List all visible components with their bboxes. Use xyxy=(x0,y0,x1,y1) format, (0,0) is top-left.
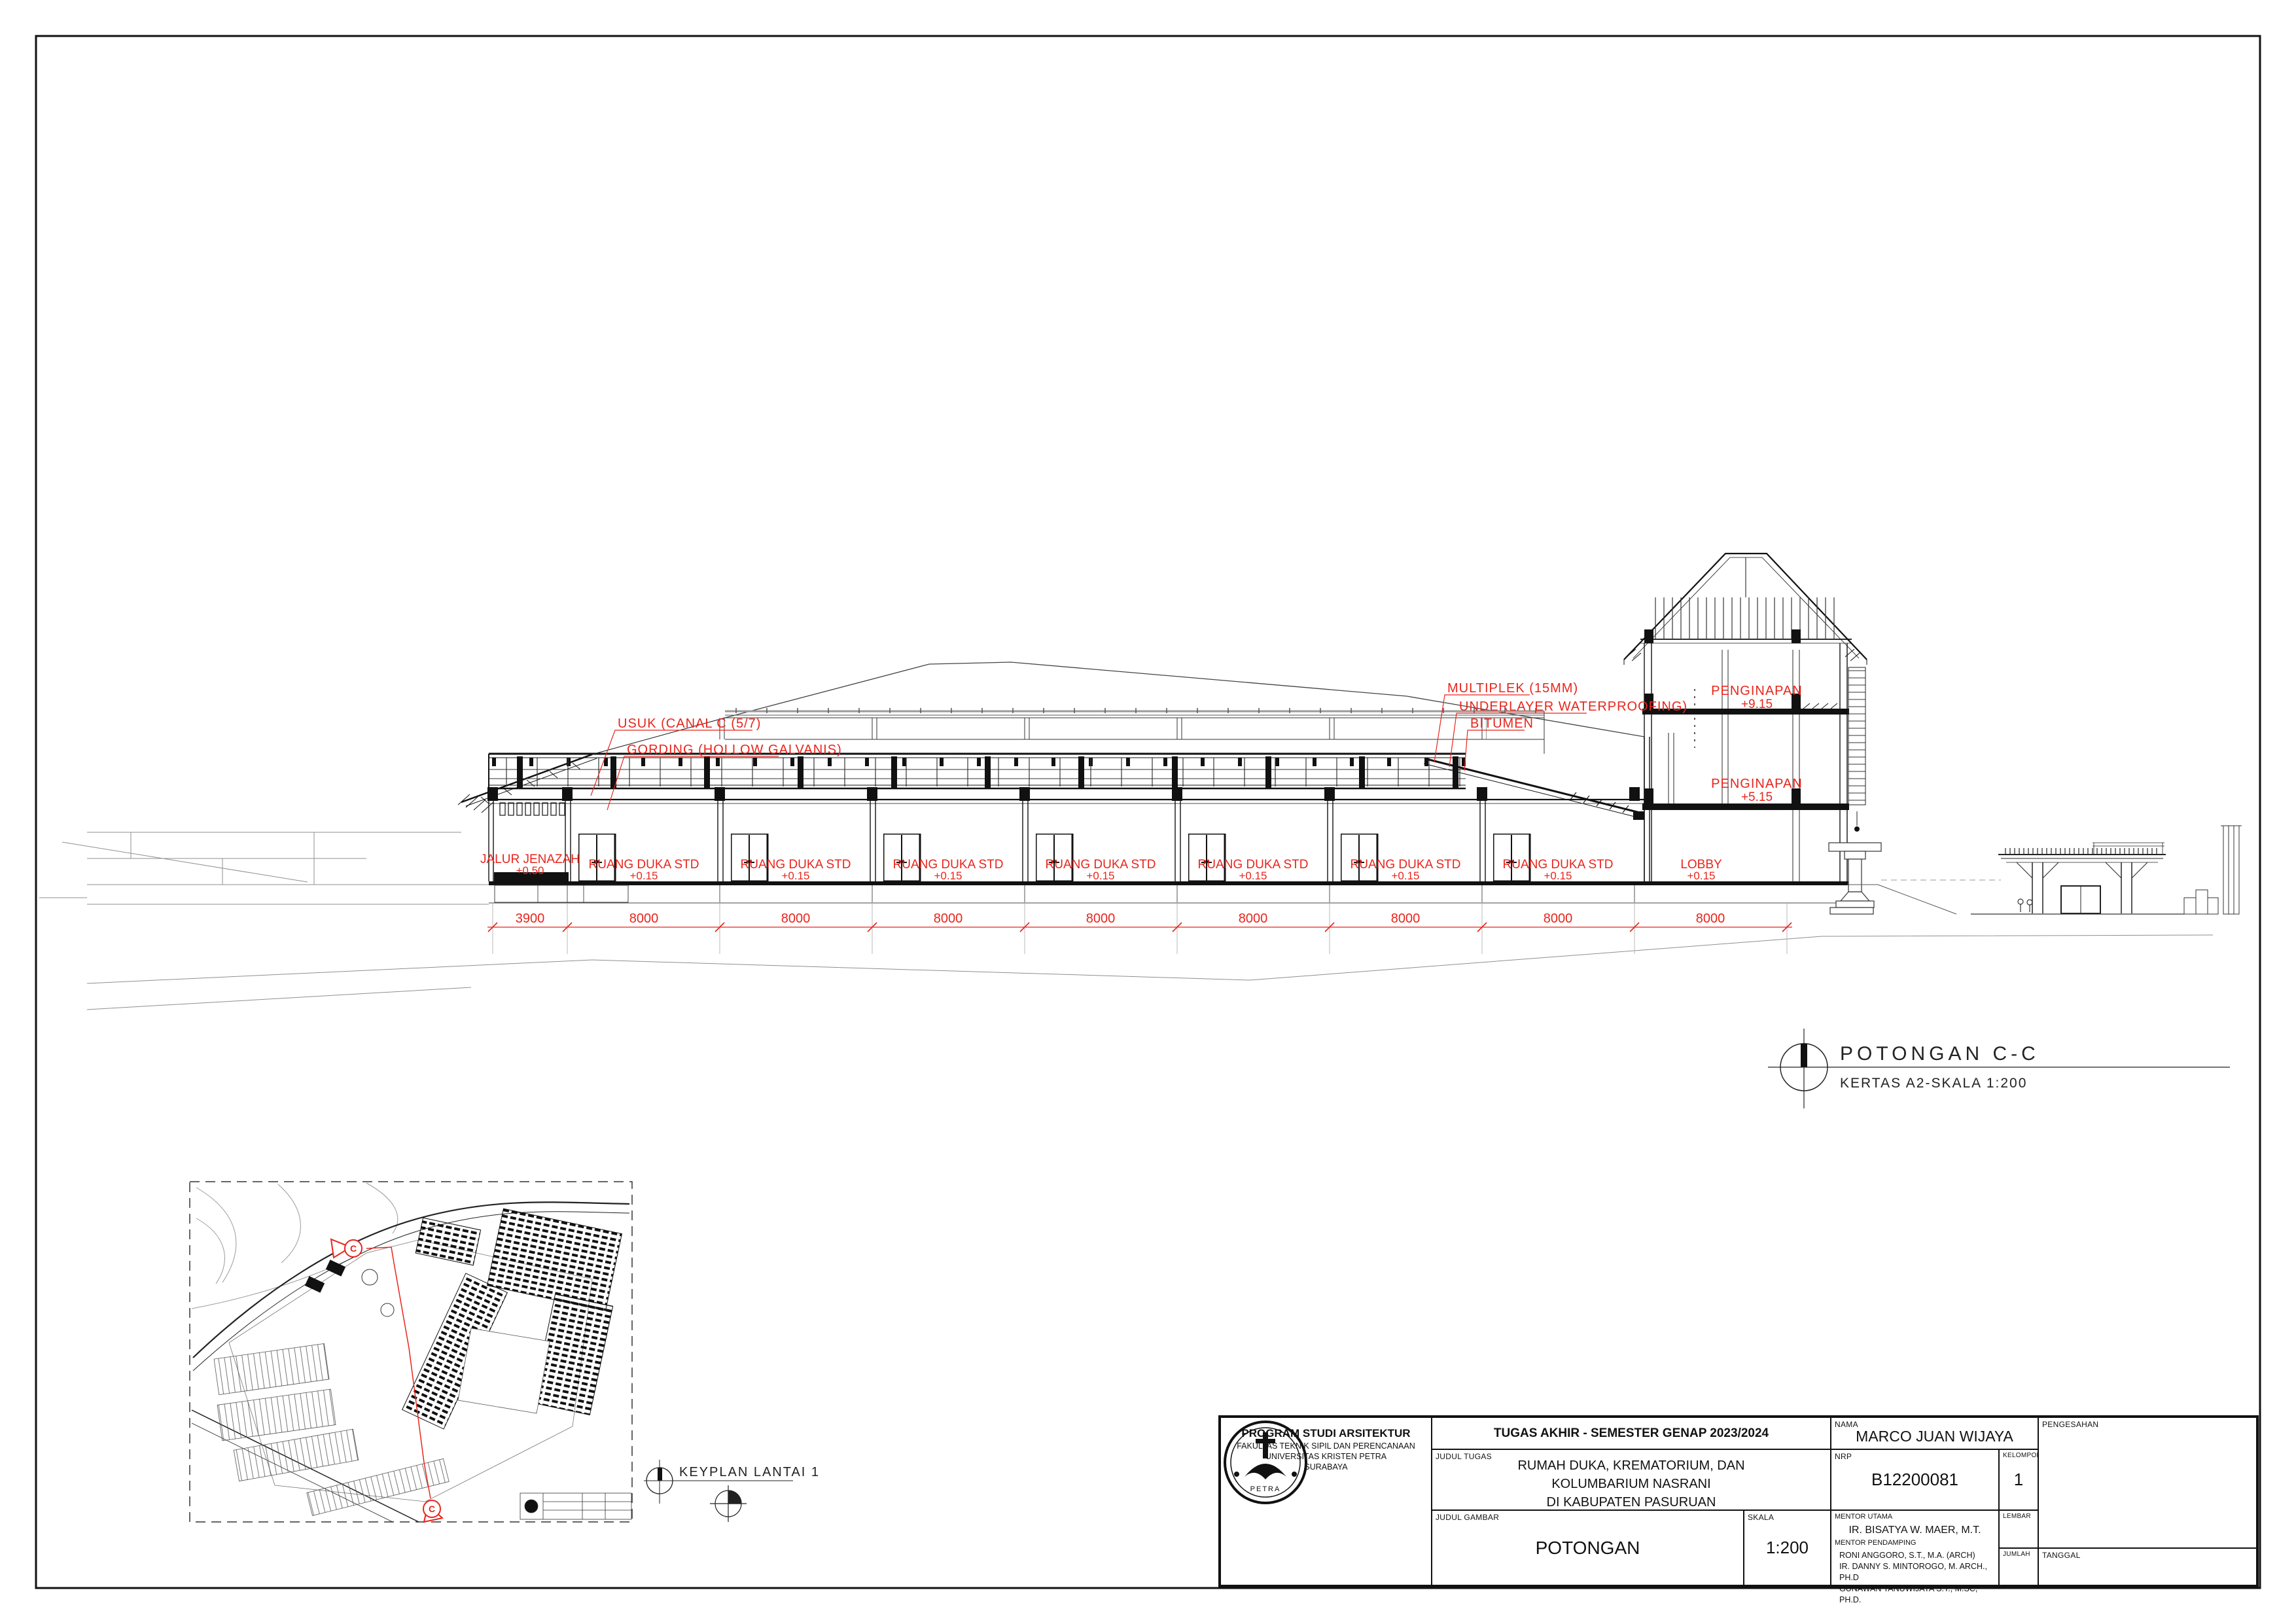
rafter-ticks xyxy=(1651,597,1839,639)
room-level: +0.15 xyxy=(1687,870,1715,882)
mentor-pendamping-label: MENTOR PENDAMPING xyxy=(1831,1539,1998,1547)
drawing-sheet: USUK (CANAL C (5/7) GORDING (HOLLOW GALV… xyxy=(0,0,2296,1624)
dim-label: 8000 xyxy=(1391,911,1421,926)
section-title: POTONGAN C-C KERTAS A2-SKALA 1:200 xyxy=(1768,1029,2230,1108)
keyplan-contours xyxy=(192,1183,398,1309)
tanggal-label: TANGGAL xyxy=(2042,1551,2081,1560)
project-title-line: RUMAH DUKA, KREMATORIUM, DAN xyxy=(1432,1456,1830,1475)
student-id: B12200081 xyxy=(1831,1450,1998,1509)
room-level: +0.15 xyxy=(1086,870,1114,882)
dimension-string: 3900 8000 8000 8000 8000 8000 8000 8000 … xyxy=(487,911,1792,932)
keyplan-parking xyxy=(214,1343,449,1515)
dim-label: 8000 xyxy=(934,911,963,926)
mentor-utama-name: IR. BISATYA W. MAER, M.T. xyxy=(1831,1525,1998,1536)
pengesahan-cell: PENGESAHAN xyxy=(2038,1417,2257,1548)
mentor-pendamping-name: RONI ANGGORO, S.T., M.A. (ARCH) xyxy=(1839,1550,1998,1561)
room-level: +0.15 xyxy=(1544,870,1572,882)
judul-tugas-label: JUDUL TUGAS xyxy=(1436,1452,1492,1461)
annotation-label: UNDERLAYER WATERPROOFING) xyxy=(1459,699,1687,714)
title-block: PETRA PROGRAM STUDI ARSITEKTUR FAKULTAS … xyxy=(1218,1415,2259,1587)
annotation-label: MULTIPLEK (15MM) xyxy=(1447,681,1578,696)
logo-text: PETRA xyxy=(1250,1485,1281,1493)
judul-tugas-cell: JUDUL TUGAS RUMAH DUKA, KREMATORIUM, DAN… xyxy=(1432,1449,1831,1510)
annotation-label: USUK (CANAL C (5/7) xyxy=(618,716,761,731)
mentor-pendamping-name: GUNAWAN TANUWIJAYA S.T., M.SC, PH.D. xyxy=(1839,1583,1998,1606)
project-title-line: KOLUMBARIUM NASRANI xyxy=(1432,1475,1830,1493)
drawing-title: POTONGAN xyxy=(1432,1511,1743,1585)
university-logo: PETRA xyxy=(1221,1418,1310,1507)
lembar-cell: LEMBAR xyxy=(1999,1510,2038,1548)
tanggal-cell: TANGGAL xyxy=(2038,1548,2257,1585)
project-title-line: DI KABUPATEN PASURUAN xyxy=(1432,1493,1830,1511)
section-drawing-canvas: USUK (CANAL C (5/7) GORDING (HOLLOW GALV… xyxy=(0,0,2296,1624)
institution-cell: PETRA PROGRAM STUDI ARSITEKTUR FAKULTAS … xyxy=(1220,1417,1432,1585)
room-level: +0.50 xyxy=(516,864,544,877)
room-level: +0.15 xyxy=(934,870,962,882)
people-figures xyxy=(2018,899,2032,912)
kelompok-cell: KELOMPOK 1 xyxy=(1999,1449,2038,1510)
room-label: PENGINAPAN xyxy=(1711,684,1803,698)
tower-ladder xyxy=(1848,667,1865,805)
section-title-text: POTONGAN C-C xyxy=(1840,1043,2040,1065)
section-subtitle-text: KERTAS A2-SKALA 1:200 xyxy=(1840,1076,2027,1091)
student-name: MARCO JUAN WIJAYA xyxy=(1831,1418,2038,1449)
nama-cell: NAMA MARCO JUAN WIJAYA xyxy=(1831,1417,2038,1449)
header-cell: TUGAS AKHIR - SEMESTER GENAP 2023/2024 xyxy=(1432,1417,1831,1449)
foundation-lines xyxy=(489,885,1847,903)
dim-label: 8000 xyxy=(1086,911,1116,926)
north-symbol xyxy=(710,1485,747,1522)
section-marker-letter: C xyxy=(350,1243,357,1254)
room-level: +0.15 xyxy=(1391,870,1419,882)
mentor-utama-label: MENTOR UTAMA xyxy=(1831,1511,1998,1521)
group-number: 1 xyxy=(2000,1450,2038,1509)
dim-label: 3900 xyxy=(516,911,545,926)
tower-slab-515 xyxy=(1642,803,1849,810)
pengesahan-label: PENGESAHAN xyxy=(2042,1420,2098,1429)
jumlah-cell: JUMLAH xyxy=(1999,1548,2038,1585)
dim-label: 8000 xyxy=(1696,911,1725,926)
room-level: +9.15 xyxy=(1741,697,1773,711)
site-context-right xyxy=(1829,826,2242,914)
extension-lines xyxy=(493,903,1787,954)
page-border xyxy=(36,36,2260,1588)
site-steps xyxy=(2184,826,2242,914)
tower-room-labels: PENGINAPAN +9.15 PENGINAPAN +5.15 xyxy=(1711,684,1803,804)
annotation-label: BITUMEN xyxy=(1470,716,1534,731)
keyplan-mini-titleblock xyxy=(520,1493,631,1519)
tower-section xyxy=(1624,554,1867,881)
room-level: +5.15 xyxy=(1741,790,1773,804)
roof-truss-band xyxy=(489,754,1466,788)
annotation-label: GORDING (HOLLOW GALVANIS) xyxy=(627,743,842,757)
keyplan: C C KEYPLAN LANTAI 1 xyxy=(190,1182,820,1522)
dim-label: 8000 xyxy=(1544,911,1573,926)
jumlah-label: JUMLAH xyxy=(2003,1551,2030,1558)
tower-walls xyxy=(1644,643,1847,881)
room-label: PENGINAPAN xyxy=(1711,777,1803,791)
pedestal xyxy=(1829,843,1881,914)
room-labels: JALUR JENAZAH +0.50 RUANG DUKA STD +0.15… xyxy=(480,853,1722,882)
dim-label: 8000 xyxy=(781,911,811,926)
floor-slab xyxy=(489,881,1849,885)
judul-gambar-cell: JUDUL GAMBAR POTONGAN xyxy=(1432,1510,1744,1585)
room-level: +0.15 xyxy=(629,870,658,882)
pavilion xyxy=(1998,843,2166,913)
keyplan-title-text: KEYPLAN LANTAI 1 xyxy=(679,1465,820,1479)
skala-cell: SKALA 1:200 xyxy=(1744,1510,1831,1585)
city-name: SURABAYA xyxy=(1304,1462,1347,1472)
section-marker-letter: C xyxy=(429,1504,435,1514)
lembar-label: LEMBAR xyxy=(2003,1513,2031,1520)
assignment-header: TUGAS AKHIR - SEMESTER GENAP 2023/2024 xyxy=(1432,1418,1830,1449)
scale-value: 1:200 xyxy=(1744,1511,1830,1585)
nrp-cell: NRP B12200081 xyxy=(1831,1449,1999,1510)
room-level: +0.15 xyxy=(1239,870,1267,882)
dim-label: 8000 xyxy=(1239,911,1268,926)
mentor-pendamping-name: IR. DANNY S. MINTOROGO, M. ARCH., PH.D xyxy=(1839,1561,1998,1583)
room-level: +0.15 xyxy=(781,870,809,882)
mentor-cell: MENTOR UTAMA IR. BISATYA W. MAER, M.T. M… xyxy=(1831,1510,1999,1585)
dim-label: 8000 xyxy=(629,911,659,926)
section-symbol-bar xyxy=(1801,1044,1807,1067)
plumb-bob xyxy=(1854,826,1860,832)
